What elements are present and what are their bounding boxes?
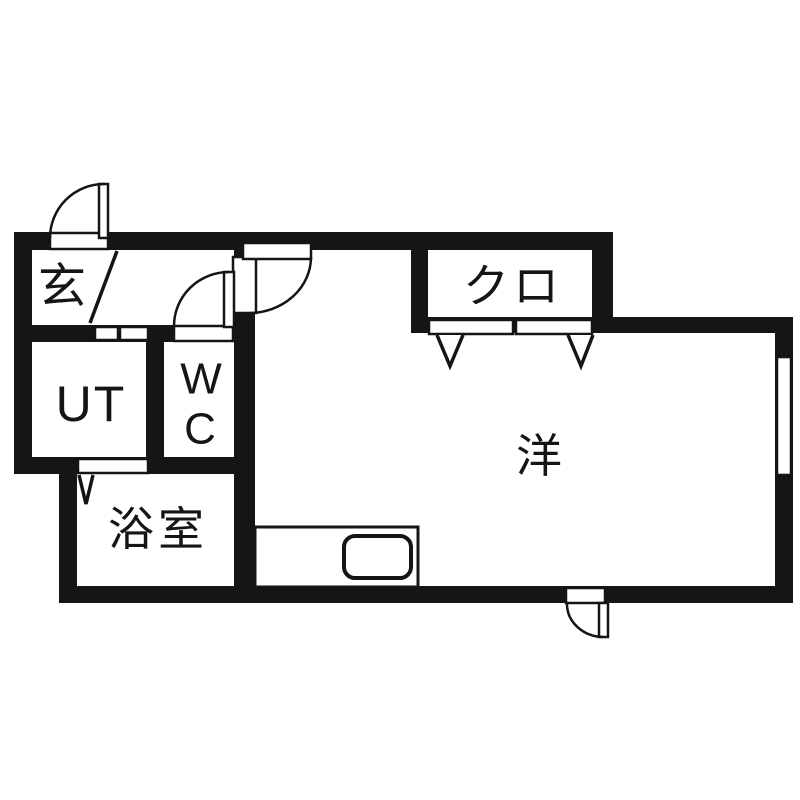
utility-label: UT <box>56 376 127 432</box>
closet-label: クロ <box>463 260 563 312</box>
bathroom-label: 浴室 <box>108 503 208 555</box>
entrance-door-leaf <box>99 184 108 238</box>
main-room-label: 洋 <box>516 430 566 482</box>
utility-sliding-door-panel-2 <box>120 327 148 340</box>
toilet-label-w: W <box>180 355 222 404</box>
floor-plan-image: 玄 クロ UT W C 浴室 洋 <box>0 0 800 800</box>
balcony-door-threshold <box>566 588 605 603</box>
toilet-door-swing-arc <box>174 272 229 326</box>
balcony-door-swing-arc <box>567 604 603 637</box>
utility-sliding-door-panel-1 <box>95 327 118 340</box>
room-door-leaf <box>243 243 311 259</box>
entrance-step-line <box>90 251 117 323</box>
genkan-label: 玄 <box>38 261 86 314</box>
bathroom-door-threshold <box>78 459 148 473</box>
floor-plan-svg: 玄 クロ UT W C 浴室 洋 <box>0 0 800 800</box>
balcony-door-leaf <box>599 603 608 637</box>
toilet-door-leaf <box>224 272 234 327</box>
bathroom-folding-door-icon <box>79 475 93 504</box>
closet-bifold-door-icon-2 <box>568 335 593 366</box>
bottom-wall <box>59 586 793 603</box>
entrance-door-swing-arc <box>50 184 104 238</box>
closet-door-threshold-2 <box>516 320 592 334</box>
kitchen-sink <box>344 536 411 578</box>
window <box>777 357 791 475</box>
room-door-opening <box>233 257 256 313</box>
closet-door-threshold-1 <box>429 320 513 334</box>
utility-toilet-divider-wall <box>146 342 164 457</box>
closet-bifold-door-icon-1 <box>437 335 463 366</box>
toilet-label-c: C <box>184 405 216 454</box>
bathroom-left-wall <box>59 474 77 603</box>
room-door-swing-arc <box>249 257 311 313</box>
left-wall <box>14 232 32 474</box>
